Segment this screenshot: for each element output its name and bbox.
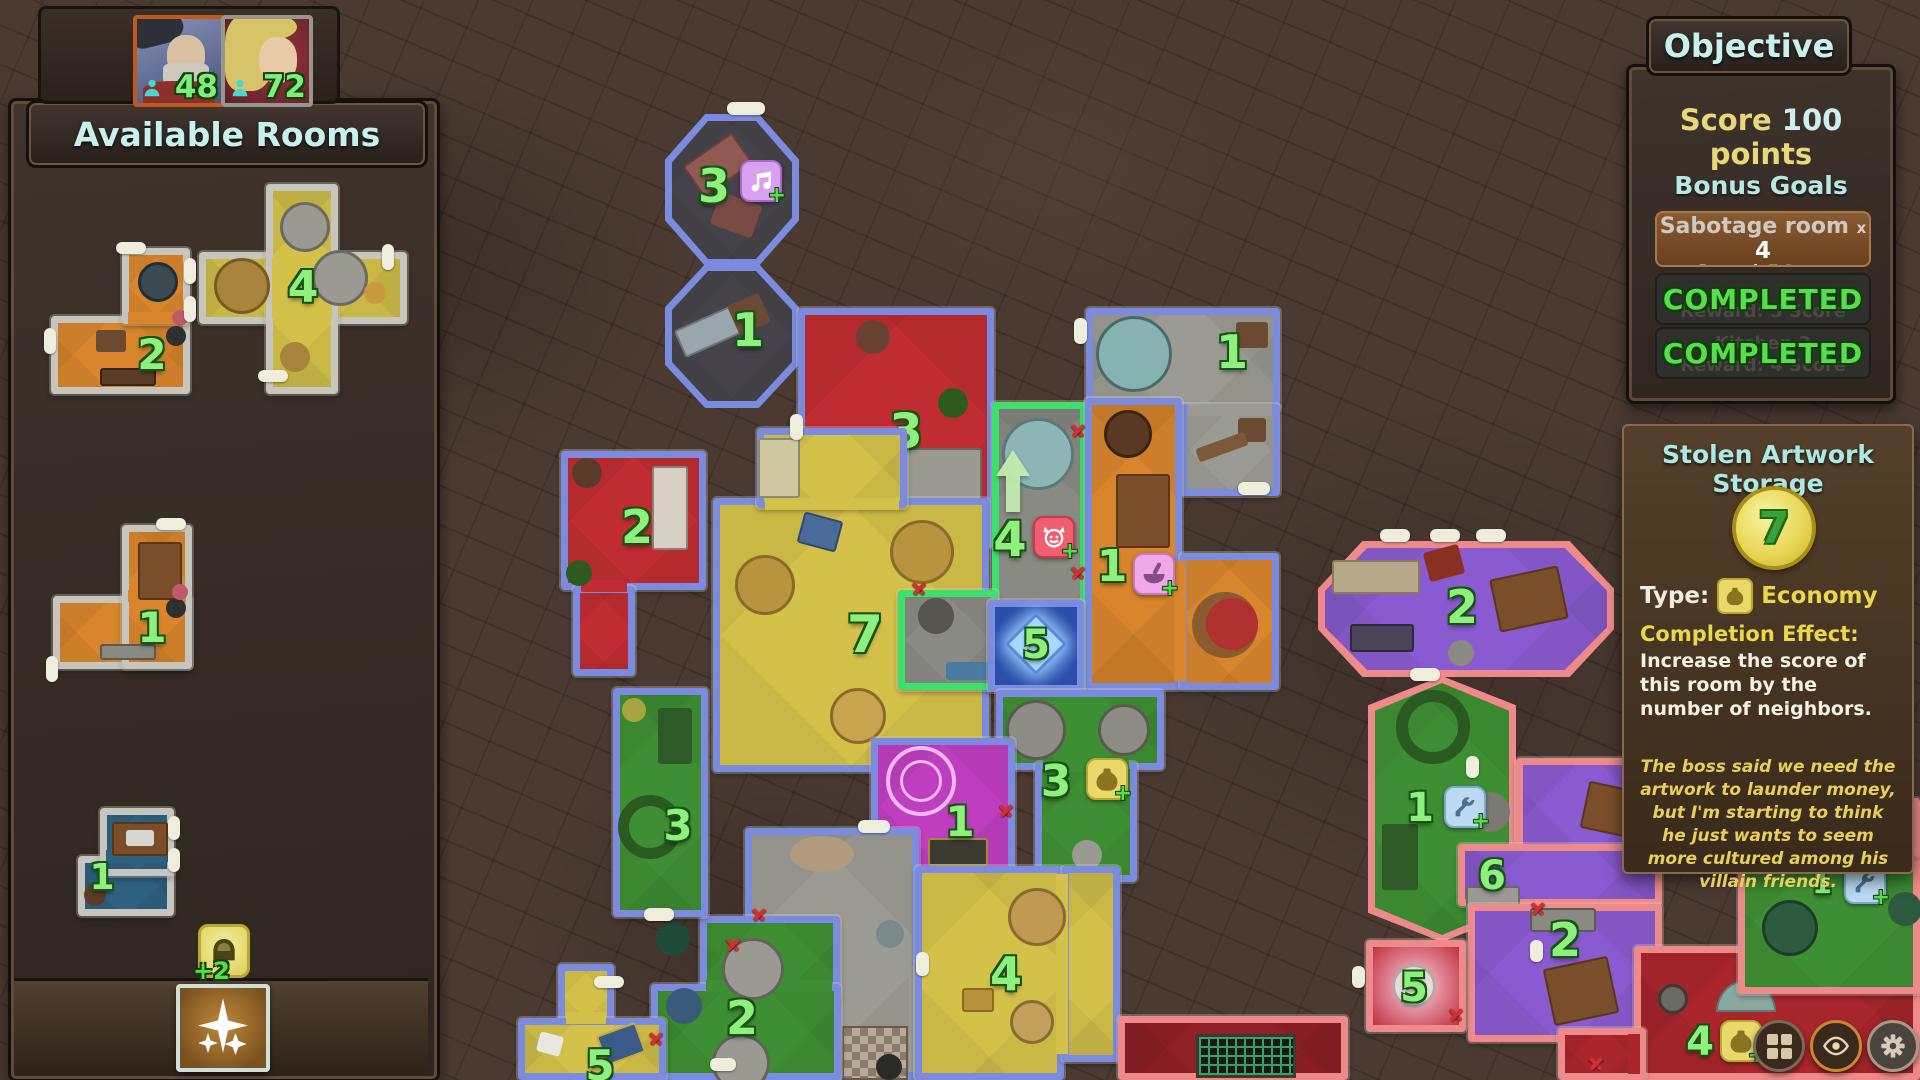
thief-bonus-chip[interactable]: +2 (198, 924, 250, 978)
visibility-button[interactable] (1810, 1020, 1862, 1072)
room-score-coin: 7 (1732, 486, 1816, 570)
avatar-hair-top (233, 15, 297, 41)
money-bag-icon (1717, 578, 1753, 614)
thief-bonus-label: +2 (193, 957, 230, 985)
eye-icon (1822, 1032, 1850, 1060)
player-two-avatar[interactable]: 72 (221, 15, 313, 107)
person-icon (141, 77, 163, 99)
effect-label: Completion Effect: (1640, 622, 1859, 646)
type-label: Type: (1640, 583, 1709, 609)
door-peg (46, 656, 58, 682)
settings-button[interactable] (1867, 1020, 1919, 1072)
door-peg (44, 328, 56, 354)
special-action-button[interactable] (176, 984, 270, 1072)
starburst-icon (191, 998, 255, 1058)
door-peg (184, 258, 196, 284)
type-value: Economy (1761, 583, 1877, 609)
rooms-grid-button[interactable] (1753, 1020, 1805, 1072)
gear-icon (1879, 1032, 1907, 1060)
player-two-score: 72 (263, 69, 306, 105)
door-peg (116, 242, 146, 254)
door-peg (168, 848, 180, 872)
door-peg (258, 370, 288, 382)
effect-body: Increase the score of this room by the n… (1640, 650, 1896, 721)
grid-icon (1767, 1034, 1792, 1059)
door-peg (168, 816, 180, 840)
player-one-avatar[interactable]: 48 (133, 15, 225, 107)
coin-value: 7 (1759, 503, 1790, 554)
door-peg (184, 296, 196, 322)
game-stage: 3+131274+1+53+11234521+6254+1+ 48 72 Ava… (0, 0, 1920, 1080)
prop-rect (126, 830, 154, 846)
room-type-row: Type: Economy (1640, 578, 1878, 614)
door-peg (382, 244, 394, 270)
player-one-score: 48 (175, 69, 218, 105)
person-icon (229, 77, 251, 99)
room-tooltip: Stolen Artwork Storage 7 Type: Economy C… (1622, 424, 1914, 874)
room-score: 1 (89, 860, 114, 896)
door-peg (156, 518, 186, 530)
player-hud: 48 72 (38, 6, 340, 104)
flavor-text: The boss said we need the artwork to lau… (1638, 756, 1898, 894)
